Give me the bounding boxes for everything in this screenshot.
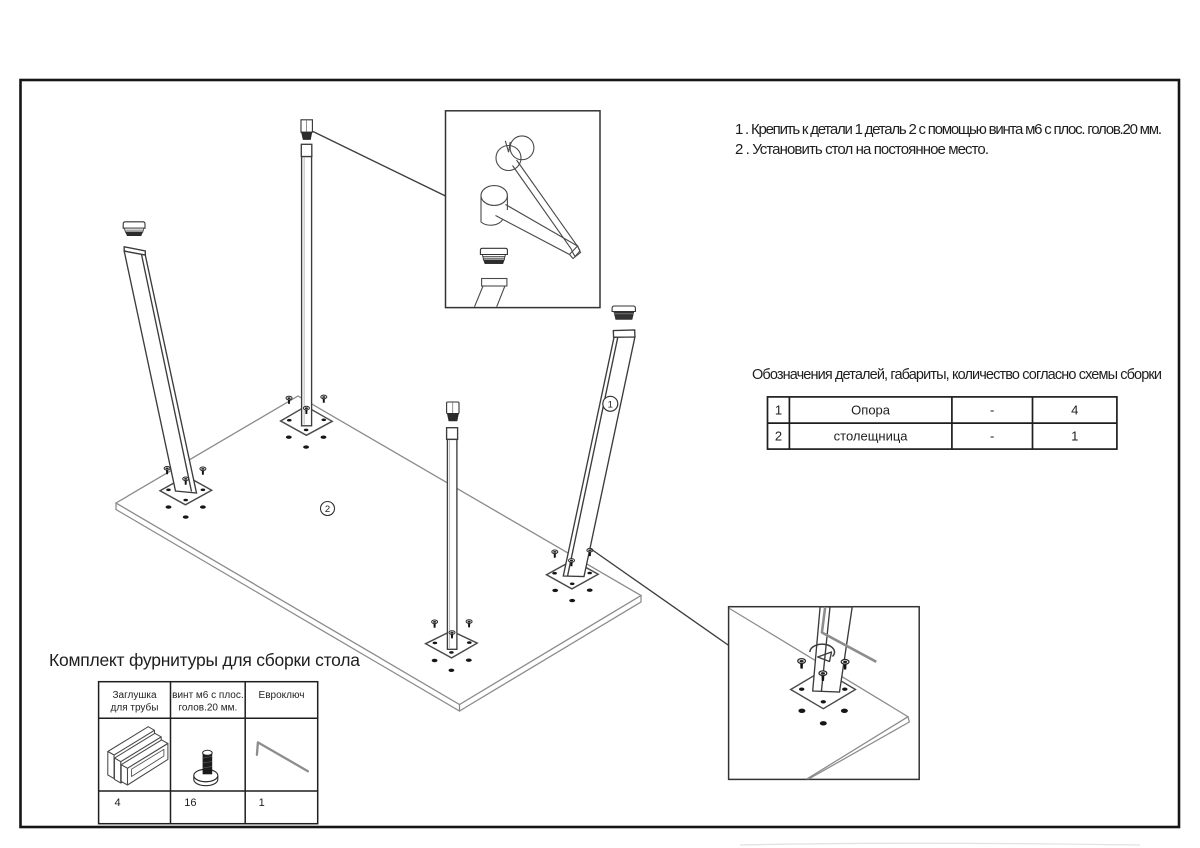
svg-text:2 . Установить стол на постоян: 2 . Установить стол на постоянное место. <box>735 141 989 158</box>
svg-text:1: 1 <box>1071 429 1078 444</box>
svg-text:-: - <box>990 403 994 418</box>
svg-text:-: - <box>990 429 994 444</box>
svg-text:голов.20 мм.: голов.20 мм. <box>178 703 237 714</box>
svg-text:2: 2 <box>775 429 782 444</box>
svg-text:Комплект фурнитуры для сборки: Комплект фурнитуры для сборки стола <box>49 650 360 670</box>
svg-text:Опора: Опора <box>851 403 891 418</box>
svg-text:Заглушка: Заглушка <box>112 690 156 701</box>
svg-text:4: 4 <box>115 797 121 809</box>
svg-text:4: 4 <box>1071 403 1078 418</box>
svg-text:1: 1 <box>608 400 613 411</box>
svg-text:Обозначения деталей, габариты,: Обозначения деталей, габариты, количеств… <box>752 367 1162 383</box>
svg-text:1: 1 <box>775 403 782 418</box>
svg-text:для трубы: для трубы <box>111 702 159 714</box>
svg-text:винт м6 с плос.: винт м6 с плос. <box>172 690 243 701</box>
svg-text:16: 16 <box>184 797 196 809</box>
svg-text:1 . Крепить к детали 1 деталь: 1 . Крепить к детали 1 деталь 2 с помощь… <box>735 121 1162 138</box>
svg-text:Евроключ: Евроключ <box>259 690 305 701</box>
svg-text:2: 2 <box>325 504 330 515</box>
svg-text:столещница: столещница <box>834 429 909 444</box>
svg-text:1: 1 <box>259 797 265 809</box>
